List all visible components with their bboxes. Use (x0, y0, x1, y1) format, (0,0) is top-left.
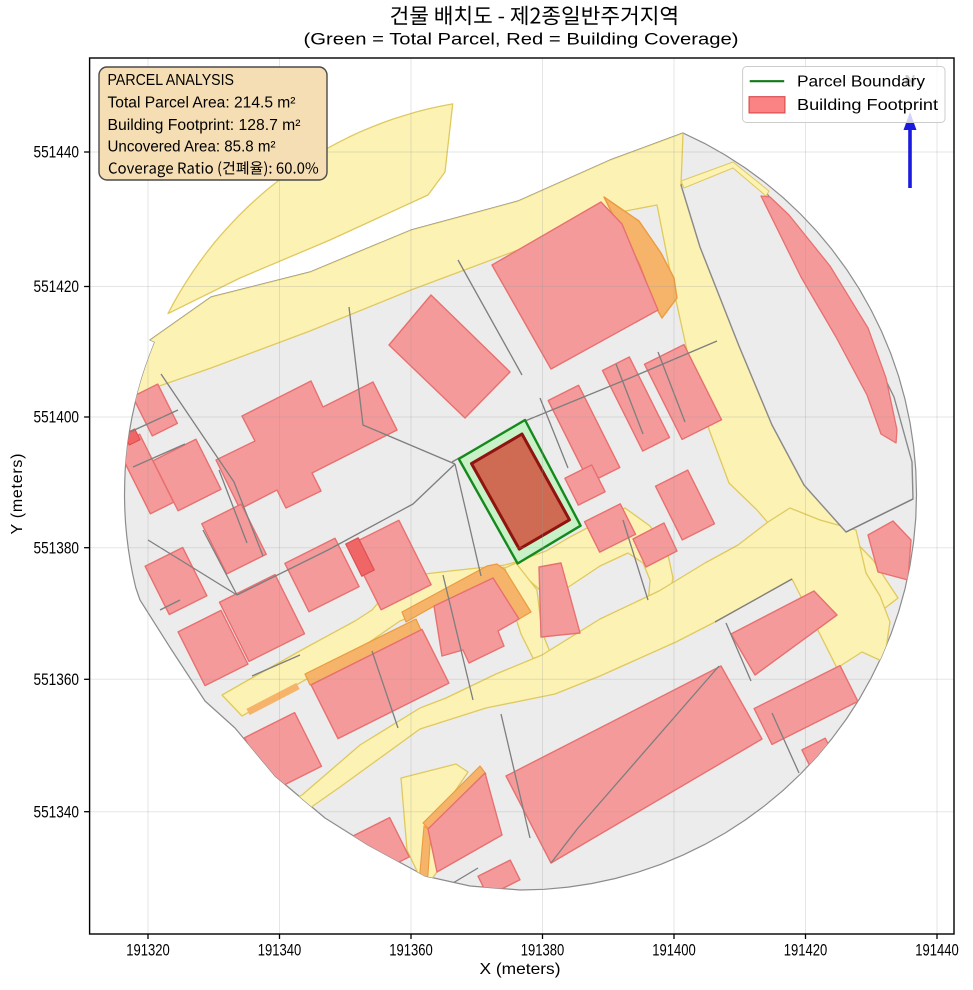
svg-text:191380: 191380 (521, 942, 565, 960)
svg-text:191400: 191400 (652, 942, 696, 960)
svg-text:X (meters): X (meters) (480, 961, 561, 978)
svg-text:Building Footprint: 128.7 m²: Building Footprint: 128.7 m² (108, 117, 301, 134)
svg-text:551420: 551420 (34, 278, 80, 296)
svg-text:191420: 191420 (784, 942, 828, 960)
svg-text:551380: 551380 (34, 539, 80, 557)
svg-text:PARCEL ANALYSIS: PARCEL ANALYSIS (108, 72, 235, 89)
svg-text:Uncovered Area: 85.8 m²: Uncovered Area: 85.8 m² (108, 139, 276, 156)
svg-text:Building Footprint: Building Footprint (797, 97, 939, 114)
svg-text:551400: 551400 (34, 409, 80, 427)
svg-text:Total Parcel Area: 214.5 m²: Total Parcel Area: 214.5 m² (108, 95, 296, 112)
svg-text:(Green = Total Parcel, Red = B: (Green = Total Parcel, Red = Building Co… (304, 30, 739, 49)
svg-text:191340: 191340 (258, 942, 302, 960)
svg-text:551360: 551360 (34, 671, 80, 689)
svg-text:551440: 551440 (34, 144, 80, 162)
svg-text:Parcel Boundary: Parcel Boundary (797, 74, 925, 91)
svg-text:551340: 551340 (34, 803, 80, 821)
svg-text:191360: 191360 (389, 942, 433, 960)
svg-text:Y (meters): Y (meters) (9, 454, 26, 535)
svg-text:191440: 191440 (915, 942, 959, 960)
svg-text:191320: 191320 (126, 942, 170, 960)
